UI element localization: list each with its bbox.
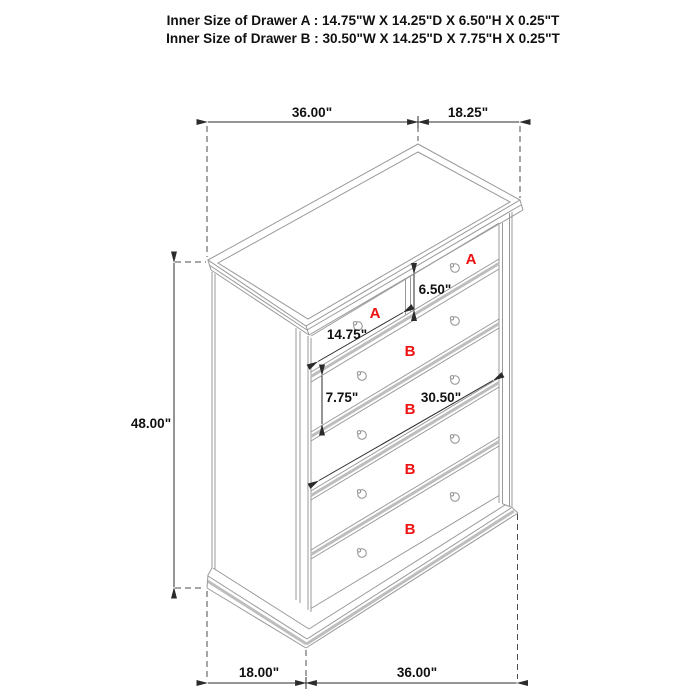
drawer-b3-letter: B	[405, 461, 416, 478]
drawer-knob	[357, 431, 366, 440]
drawer-b-width-label: 30.50"	[421, 390, 461, 405]
dresser-dimension-diagram: Inner Size of Drawer A : 14.75"W X 14.25…	[0, 0, 700, 700]
drawer-a-left-letter: A	[370, 305, 381, 322]
drawer-a-right-letter: A	[466, 251, 477, 268]
overall-height-label: 48.00"	[131, 416, 171, 431]
drawer-b-inner-size-text: Inner Size of Drawer B : 30.50"W X 14.25…	[166, 31, 560, 46]
drawer-knob	[450, 493, 459, 502]
base-width-label: 36.00"	[397, 665, 437, 680]
chest-base	[207, 504, 518, 648]
drawer-a-width-label: 14.75"	[327, 327, 367, 342]
drawer-knob	[357, 372, 366, 381]
drawer-b-height-label: 7.75"	[326, 390, 359, 405]
top-surface-inner-border	[218, 152, 510, 319]
drawer-knob	[450, 435, 459, 444]
dimension-labels: 36.00" 18.25" 48.00" 18.00" 36.00" 6.50"…	[131, 105, 488, 680]
drawer-b4-letter: B	[405, 521, 416, 538]
top-depth-label: 18.25"	[448, 105, 488, 120]
drawer-knob	[450, 376, 459, 385]
drawer-knob	[357, 549, 366, 558]
drawer-knob	[450, 264, 459, 273]
base-depth-label: 18.00"	[239, 665, 279, 680]
dresser-dimension-diagram-page: Inner Size of Drawer A : 14.75"W X 14.25…	[0, 0, 700, 700]
drawer-b1-letter: B	[405, 343, 416, 360]
drawer-a-inner-size-text: Inner Size of Drawer A : 14.75"W X 14.25…	[167, 13, 560, 28]
drawer-knob	[450, 317, 459, 326]
drawer-b2-letter: B	[405, 401, 416, 418]
drawer-knob	[357, 490, 366, 499]
drawer-a-divider	[406, 276, 411, 315]
title-block: Inner Size of Drawer A : 14.75"W X 14.25…	[166, 13, 560, 46]
top-width-label: 36.00"	[292, 105, 332, 120]
chest-top	[208, 144, 523, 335]
drawer-a-height-label: 6.50"	[419, 282, 452, 297]
